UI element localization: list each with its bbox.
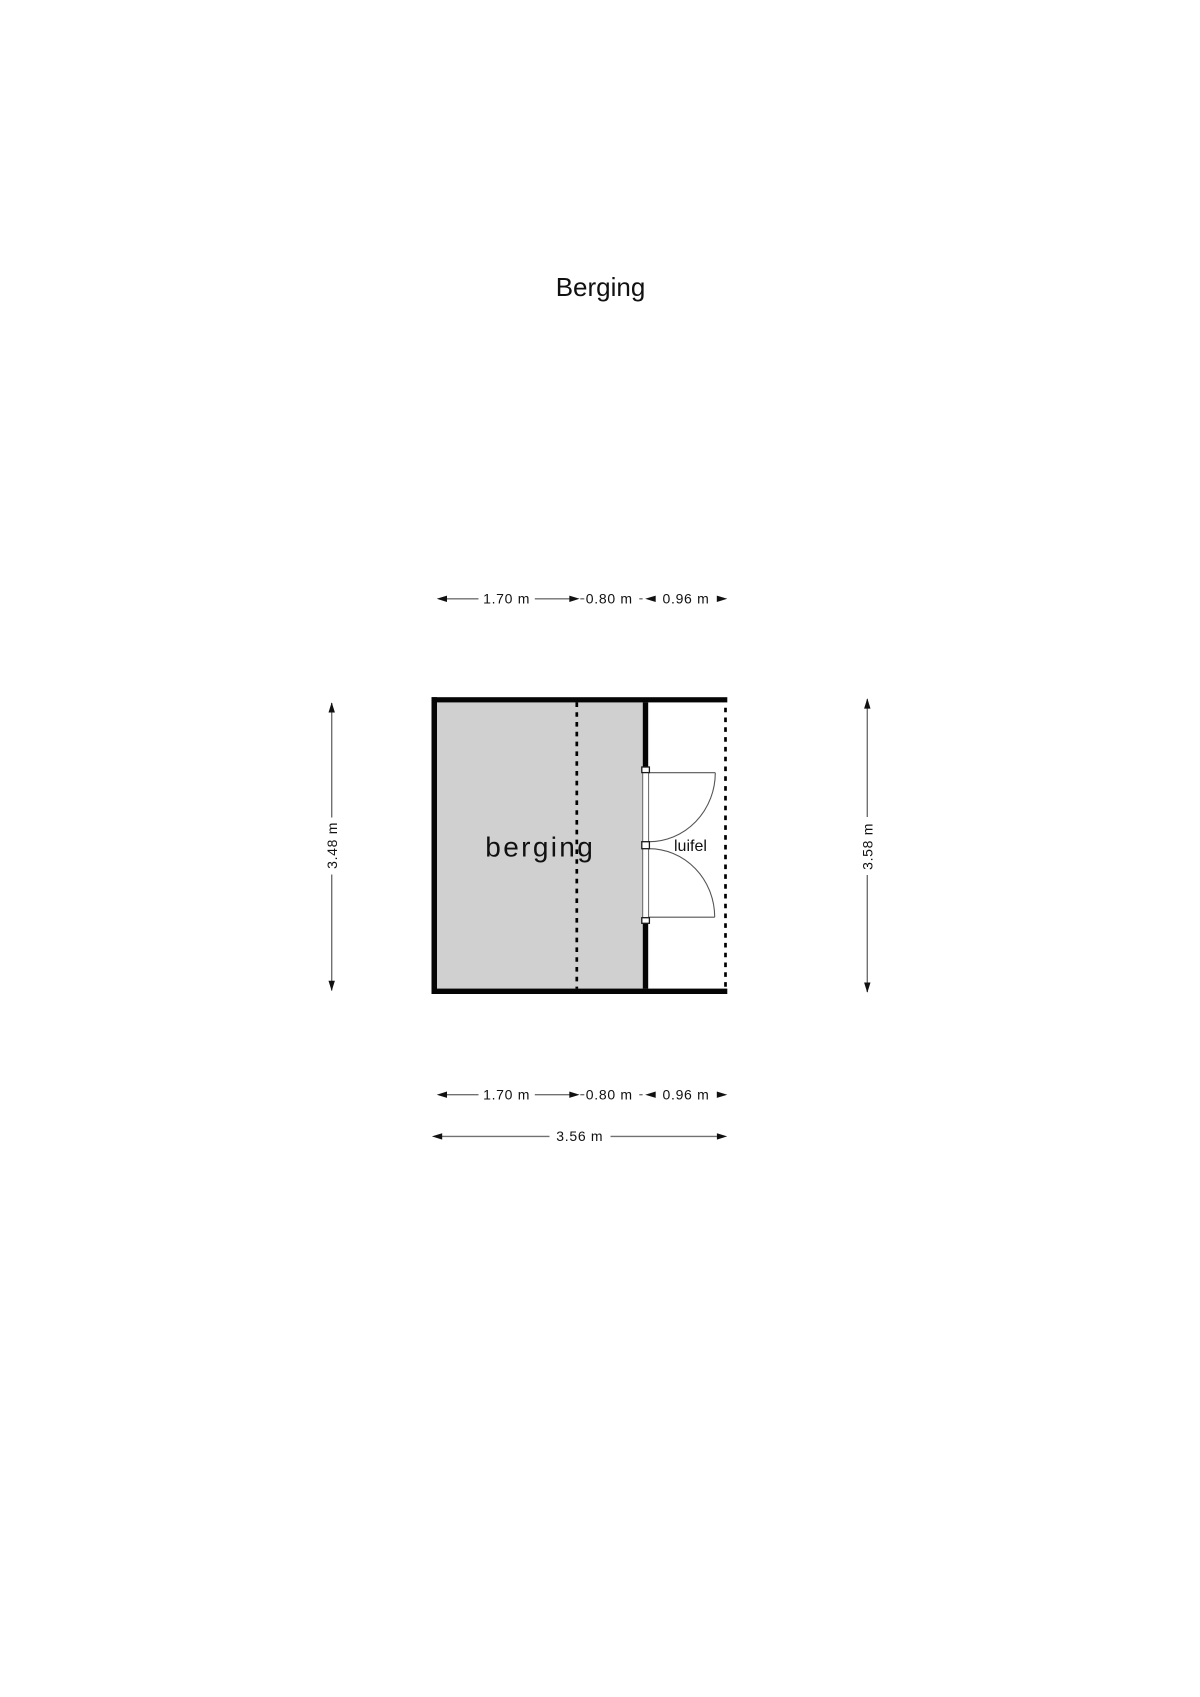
svg-text:1.70 m: 1.70 m (483, 591, 530, 607)
svg-text:berging: berging (485, 832, 595, 863)
svg-text:3.56 m: 3.56 m (556, 1128, 603, 1144)
svg-text:3.58 m: 3.58 m (859, 823, 875, 870)
svg-text:0.96 m: 0.96 m (663, 591, 710, 607)
svg-text:0.96 m: 0.96 m (663, 1087, 710, 1103)
svg-text:Berging: Berging (556, 272, 646, 302)
svg-text:0.80 m: 0.80 m (586, 1087, 633, 1103)
svg-text:3.48 m: 3.48 m (324, 822, 340, 869)
svg-text:luifel: luifel (674, 838, 707, 855)
svg-text:0.80 m: 0.80 m (586, 591, 633, 607)
svg-text:1.70 m: 1.70 m (483, 1087, 530, 1103)
